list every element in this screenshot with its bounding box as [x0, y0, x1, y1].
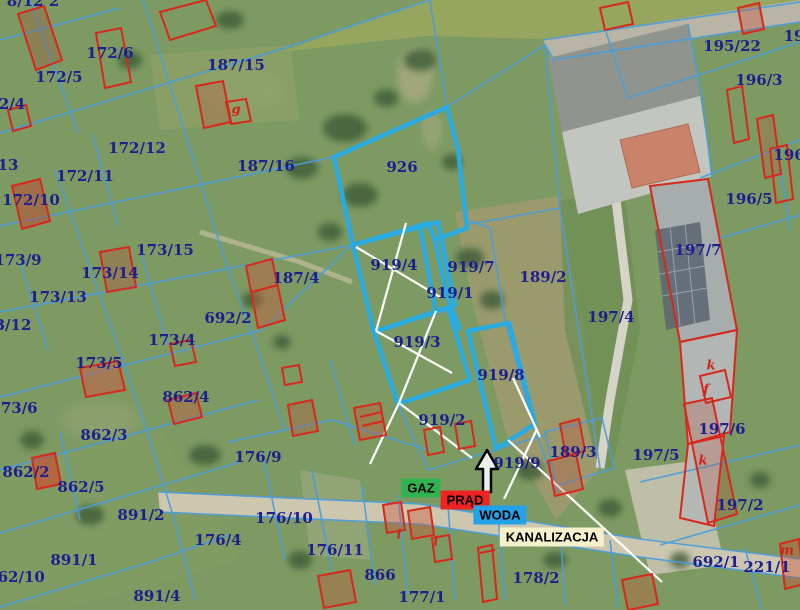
map-viewport[interactable]: 8/12 2172/6172/52/4187/15172/12172/11131… [0, 0, 800, 610]
aerial-basemap [0, 0, 800, 610]
